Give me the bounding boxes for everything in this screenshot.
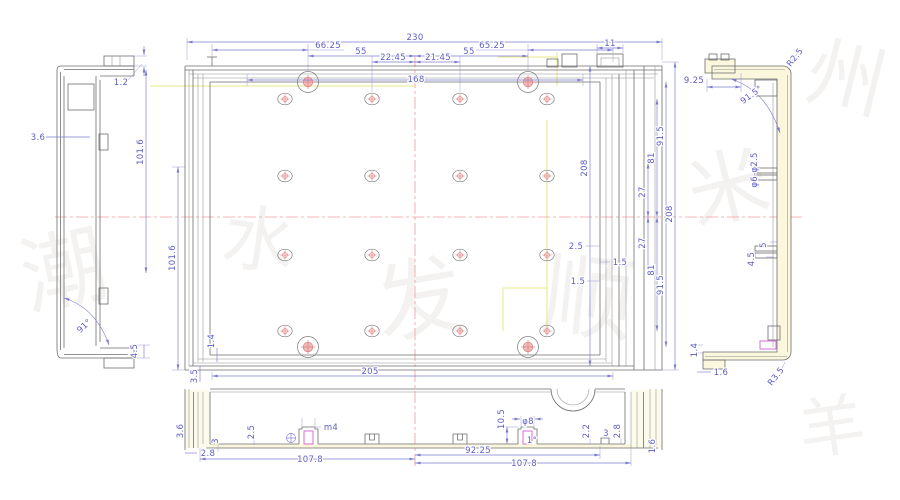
dim-left-height: 101.6 [136,139,146,165]
screw-boss-m4 [299,427,318,444]
dim-91-5-bottom: 91.5 [656,275,666,295]
dim-hole-spacing-right: 55 [463,47,474,57]
hole-small [278,93,292,105]
dim-draft-angle: 1° [527,436,537,446]
dim-2-5: 2.5 [247,425,257,439]
hole-large [518,337,539,358]
dim-inner-width: 168 [407,75,424,85]
dim-wall-2-5: 2.5 [569,242,583,252]
dim-phi8-label: φ8 [522,417,534,427]
dim-bottom-width: 205 [361,367,378,377]
hole-small [540,170,554,182]
dim-81-top: 81 [647,152,657,163]
dim-right-hole-offset: 65.25 [479,41,505,51]
hole-small [365,93,379,105]
bottom-tab [104,358,134,368]
watermark-glyph: 羊 [794,385,870,470]
dim-tab-offset: 9.25 [684,76,704,86]
dim-81-bottom: 81 [647,264,657,275]
dim-wall-1-5b: 1.5 [571,277,585,287]
dim-2-2: 2.2 [582,424,592,438]
dim-91-5-top: 91.5 [656,126,666,146]
dim-tab-1-6: 1.6 [714,368,728,378]
dim-wall-1-5a: 1.5 [613,258,627,268]
watermark-glyph: 州 [798,27,895,133]
dim-m4-label: m4 [324,423,338,433]
dim-radius-bottom: R3.5 [766,366,787,388]
hole-small [278,325,292,337]
dim-center-right: 21.45 [425,53,451,63]
dim-left-tab-height: 1.2 [114,78,128,88]
hole-small [453,93,467,105]
bottom-section-view: 3.6 3 2.5 2.8 m4 10.5 φ8 1° 2.2 3 2.8 1.… [176,389,662,469]
drawing-canvas: 潮 水 发 顺 米 州 羊 [0,0,900,500]
dim-2-8-right: 2.8 [613,424,623,438]
dim-hole-spacing-left: 55 [355,47,366,57]
dim-208-inner: 208 [580,159,590,176]
hole-small [365,170,379,182]
cad-drawing: 潮 水 发 顺 米 州 羊 [0,0,900,500]
dim-wall-3-6: 3.6 [176,424,186,438]
dim-left-flange: 4.5 [130,344,140,358]
dim-2-8-left: 2.8 [201,449,215,459]
top-tab [104,56,134,66]
watermark-glyph: 水 [217,194,300,287]
watermark-glyph: 发 [367,242,472,359]
dim-flange-1-4: 1.4 [690,343,700,357]
dim-edge-1-4: 1.4 [207,334,217,348]
dim-left-angle: 91° [75,317,94,335]
hole-small [365,325,379,337]
top-notch [562,54,577,67]
dim-notch-width: 11 [604,39,615,49]
hole-large [298,337,319,358]
dim-3-left: 3 [211,438,221,444]
dim-edge-3-5: 3.5 [190,369,200,383]
dim-27-top: 27 [638,186,648,197]
dim-107-8-left: 107.8 [297,455,323,465]
hole-small [278,170,292,182]
dim-107-8-right: 107.8 [511,459,537,469]
dim-center-left: 22.45 [380,53,406,63]
dim-27-bottom: 27 [638,237,648,248]
construction-lines [150,52,557,331]
dim-height-101: 101.6 [168,245,178,271]
dim-left-wall-thickness: 3.6 [31,133,45,143]
hole-small [453,170,467,182]
floor-tab [453,434,467,444]
dim-208-outer: 208 [665,205,675,222]
hole-small [540,93,554,105]
highlight-slot [760,341,776,349]
dim-overall-width: 230 [406,33,423,43]
dim-slot-5: 5 [759,242,769,248]
dim-hole-callout: φ6-φ2.5 [750,152,760,187]
dim-92-25: 92.25 [465,446,491,456]
corner-boss [68,84,94,110]
dim-boss-height: 10.5 [497,409,507,429]
dim-angle-91-5: 91.5° [739,84,765,107]
dim-radius-top: R2.5 [785,47,806,69]
floor-tab [365,434,379,444]
semicircle-notch [551,389,595,411]
dim-1-6-right: 1.6 [648,439,658,453]
dim-3-right: 3 [603,429,609,439]
watermark-glyph: 米 [678,134,778,244]
dim-left-hole-offset: 66.25 [315,41,341,51]
dim-slot-4-5: 4.5 [747,252,757,266]
